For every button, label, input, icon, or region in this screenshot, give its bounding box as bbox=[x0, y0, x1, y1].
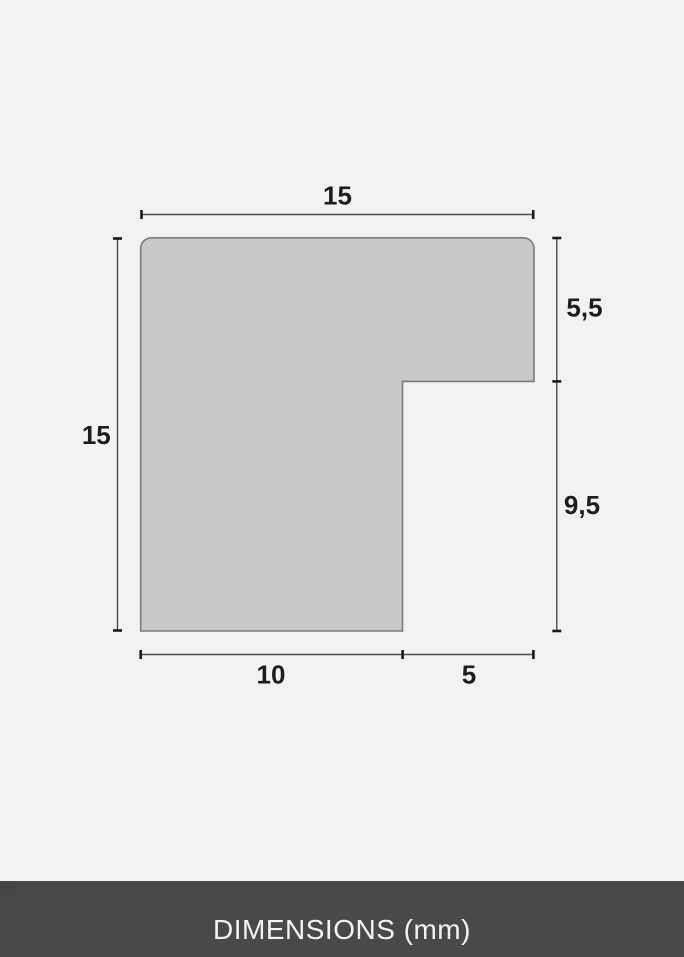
svg-text:5,5: 5,5 bbox=[566, 292, 602, 322]
svg-text:15: 15 bbox=[82, 420, 111, 450]
svg-text:10: 10 bbox=[257, 659, 286, 689]
svg-text:5: 5 bbox=[462, 659, 476, 689]
svg-text:15: 15 bbox=[323, 181, 352, 211]
svg-text:9,5: 9,5 bbox=[564, 490, 600, 520]
